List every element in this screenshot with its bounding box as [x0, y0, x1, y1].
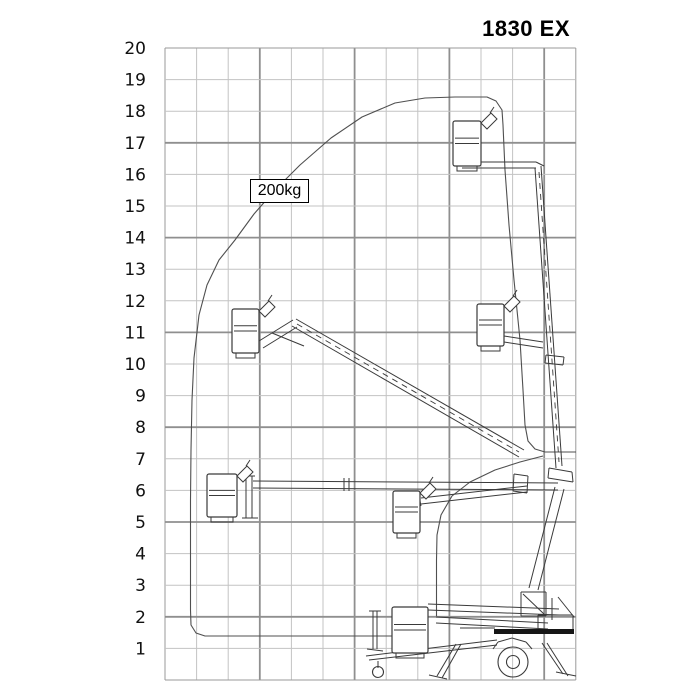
model-title: 1830 EX [482, 16, 570, 42]
svg-text:16: 16 [124, 165, 146, 185]
machine-line-art [242, 162, 576, 679]
svg-text:11: 11 [124, 323, 146, 343]
svg-text:8: 8 [135, 418, 146, 438]
svg-text:13: 13 [124, 260, 146, 280]
svg-text:1: 1 [135, 639, 146, 659]
svg-text:17: 17 [124, 134, 146, 154]
envelope-chart: 2019181716151413121110987654321 [0, 0, 700, 700]
svg-text:12: 12 [124, 292, 146, 312]
svg-text:18: 18 [124, 102, 146, 122]
svg-text:15: 15 [124, 197, 146, 217]
capacity-label: 200kg [250, 179, 309, 203]
svg-text:14: 14 [124, 229, 146, 249]
grid [165, 48, 576, 680]
y-axis-labels: 2019181716151413121110987654321 [124, 39, 146, 659]
svg-text:3: 3 [135, 576, 146, 596]
svg-text:2: 2 [135, 608, 146, 628]
envelope-outer-curve [191, 97, 577, 636]
svg-text:4: 4 [135, 545, 146, 565]
svg-text:5: 5 [135, 513, 146, 533]
working-range-diagram: { "title": "1830 EX", "capacity_label": … [0, 0, 700, 700]
svg-text:10: 10 [124, 355, 146, 375]
diagram-stage: 2019181716151413121110987654321 1830 EX … [0, 0, 700, 700]
svg-text:7: 7 [135, 450, 146, 470]
svg-text:19: 19 [124, 71, 146, 91]
svg-text:6: 6 [135, 481, 146, 501]
svg-text:20: 20 [124, 39, 146, 59]
svg-text:9: 9 [135, 387, 146, 407]
